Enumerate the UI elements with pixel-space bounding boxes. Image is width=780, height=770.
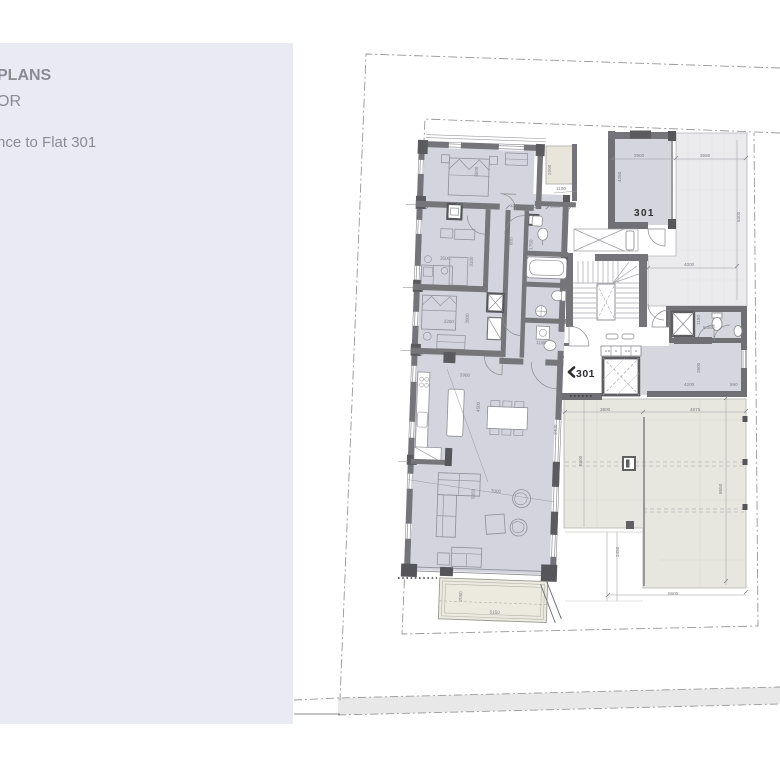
svg-text:3550: 3550 (700, 153, 711, 158)
svg-text:1100: 1100 (556, 186, 566, 191)
svg-text:1150: 1150 (696, 315, 701, 325)
svg-text:301: 301 (634, 208, 655, 219)
svg-text:3200: 3200 (444, 319, 455, 324)
svg-text:5450: 5450 (703, 325, 714, 330)
svg-text:5950: 5950 (471, 488, 476, 499)
svg-text:3000: 3000 (456, 201, 467, 206)
svg-text:7000: 7000 (491, 489, 502, 494)
svg-text:4200: 4200 (684, 382, 695, 387)
svg-text:3400: 3400 (553, 424, 558, 435)
svg-text:4250: 4250 (617, 171, 622, 182)
svg-text:301: 301 (576, 368, 595, 380)
svg-text:6300: 6300 (578, 455, 583, 466)
svg-text:3000: 3000 (465, 313, 470, 324)
svg-text:2600: 2600 (696, 362, 701, 373)
svg-text:3900: 3900 (460, 372, 471, 377)
svg-text:2200: 2200 (547, 164, 552, 175)
svg-text:2050: 2050 (458, 591, 463, 602)
svg-text:2450: 2450 (615, 546, 620, 557)
svg-text:1300: 1300 (550, 203, 561, 208)
svg-text:3500: 3500 (440, 256, 451, 261)
svg-text:OR: OR (0, 93, 21, 110)
svg-text:4875: 4875 (690, 407, 701, 412)
svg-text:5150: 5150 (490, 610, 501, 615)
svg-text:590: 590 (730, 382, 738, 387)
svg-text:4000: 4000 (684, 262, 695, 267)
svg-text:4500: 4500 (476, 401, 481, 412)
svg-text:600: 600 (531, 204, 539, 209)
svg-text:600: 600 (508, 237, 513, 245)
svg-text:3800: 3800 (600, 407, 611, 412)
svg-text:nce to Flat 301: nce to Flat 301 (0, 134, 96, 151)
svg-text:3100: 3100 (469, 256, 474, 267)
svg-text:PLANS: PLANS (0, 67, 52, 84)
svg-text:8650: 8650 (718, 483, 723, 494)
svg-text:2900: 2900 (634, 153, 645, 158)
svg-text:3500: 3500 (474, 166, 479, 177)
svg-text:1100: 1100 (536, 340, 546, 345)
svg-text:1300: 1300 (510, 203, 521, 208)
svg-text:1750: 1750 (528, 239, 533, 250)
